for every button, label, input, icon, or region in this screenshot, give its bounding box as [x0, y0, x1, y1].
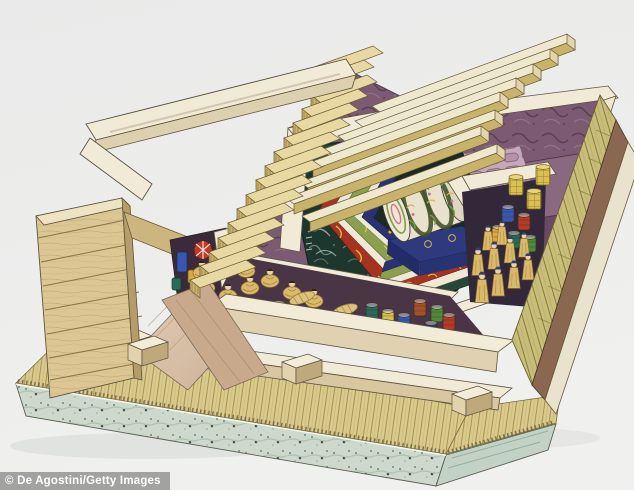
credit-text: © De Agostini/Getty Images	[5, 475, 161, 487]
illustration-canvas	[0, 0, 634, 490]
getty-watermark: © De Agostini/Getty Images	[0, 472, 170, 490]
tomb-illustration: © De Agostini/Getty Images	[0, 0, 634, 490]
